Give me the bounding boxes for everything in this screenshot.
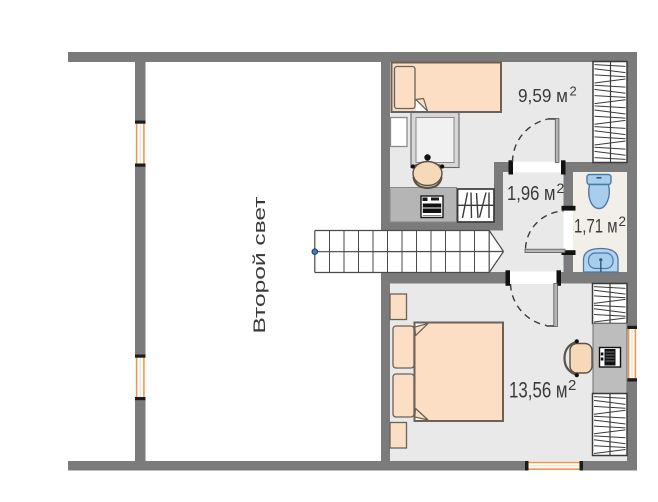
svg-text:2: 2 bbox=[568, 377, 576, 394]
svg-text:2: 2 bbox=[619, 214, 627, 229]
svg-text:2: 2 bbox=[570, 84, 577, 99]
svg-text:9,59 м: 9,59 м bbox=[518, 86, 568, 106]
svg-text:13,56 м: 13,56 м bbox=[509, 378, 568, 403]
svg-text:Второй свет: Второй свет bbox=[251, 196, 269, 334]
svg-text:2: 2 bbox=[557, 180, 565, 196]
svg-text:1,96 м: 1,96 м bbox=[507, 182, 556, 205]
svg-text:1,71 м: 1,71 м bbox=[574, 216, 618, 238]
